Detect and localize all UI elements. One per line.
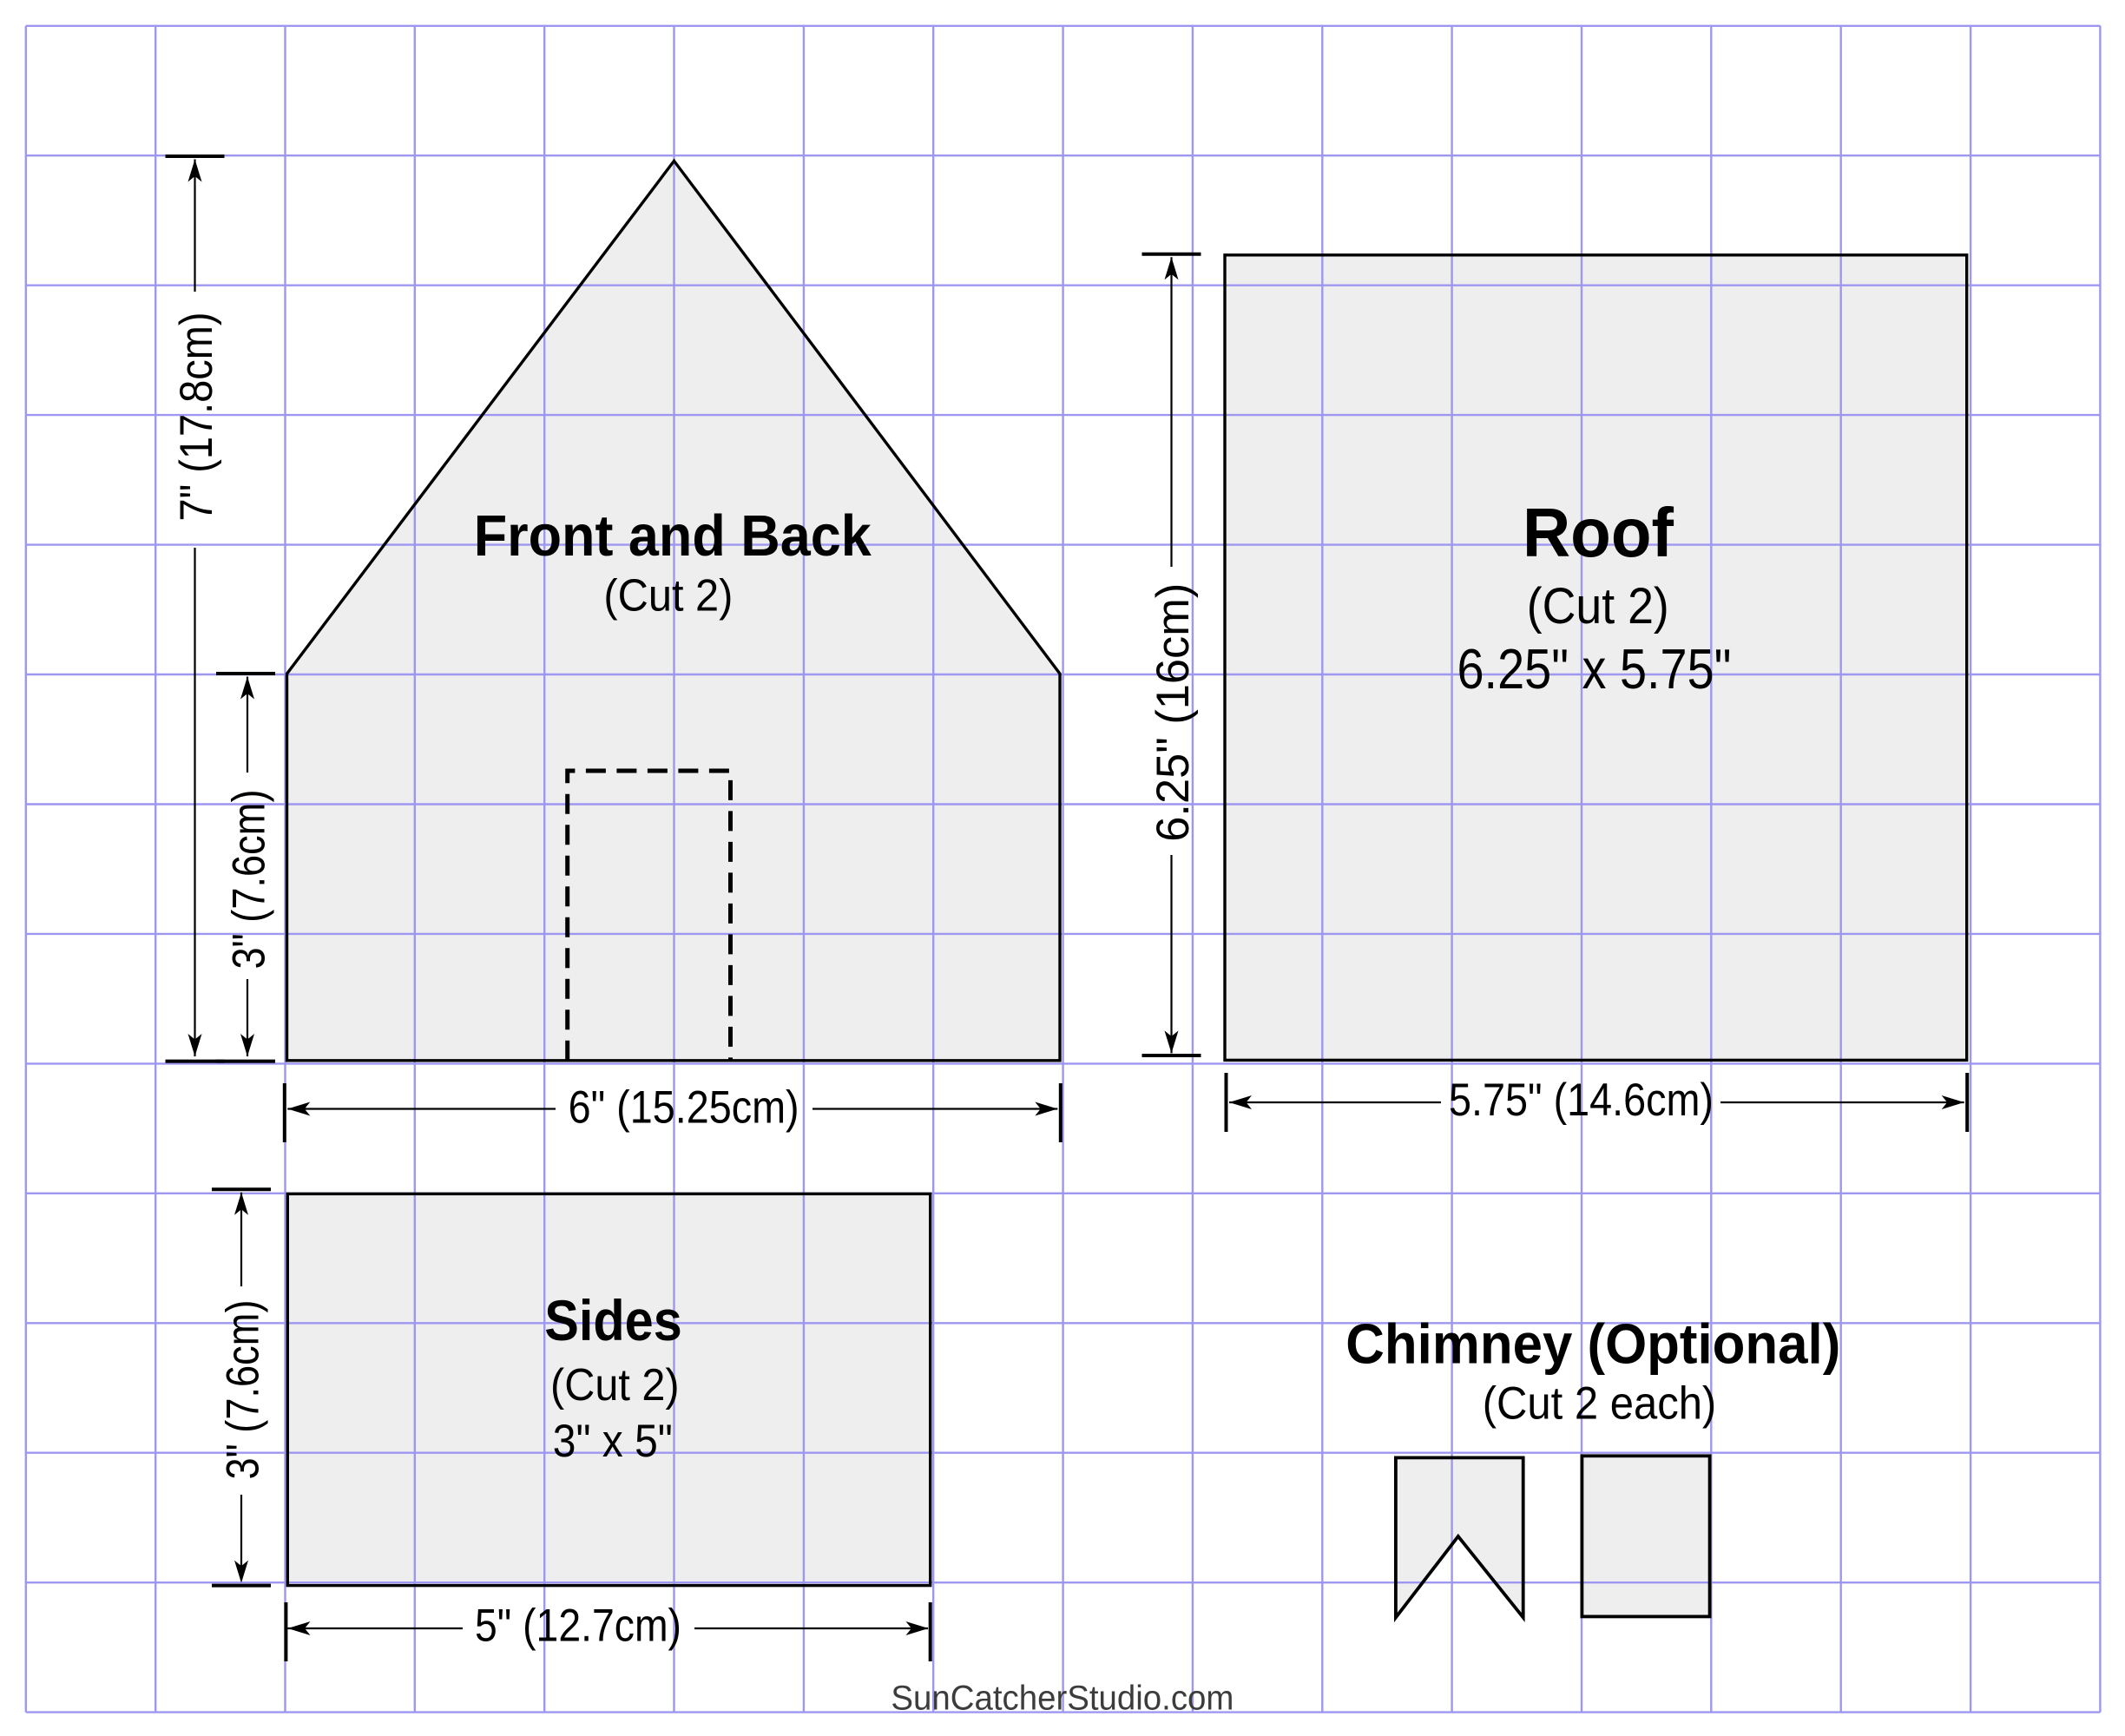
svg-text:6" (15.25cm): 6" (15.25cm): [569, 1082, 799, 1133]
svg-text:3" (7.6cm): 3" (7.6cm): [217, 1300, 268, 1480]
svg-text:(Cut 2): (Cut 2): [603, 571, 733, 621]
svg-text:6.25" x 5.75": 6.25" x 5.75": [1457, 638, 1732, 700]
svg-text:5" (12.7cm): 5" (12.7cm): [475, 1601, 681, 1652]
svg-text:6.25" (16cm): 6.25" (16cm): [1148, 583, 1199, 842]
svg-text:Chimney (Optional): Chimney (Optional): [1345, 1312, 1840, 1375]
svg-text:7" (17.8cm): 7" (17.8cm): [171, 312, 222, 522]
svg-text:SunCatcherStudio.com: SunCatcherStudio.com: [891, 1679, 1234, 1717]
svg-text:Front and Back: Front and Back: [474, 503, 872, 569]
svg-text:3" (7.6cm): 3" (7.6cm): [223, 790, 274, 970]
svg-text:Roof: Roof: [1523, 494, 1674, 571]
svg-text:(Cut 2): (Cut 2): [550, 1360, 680, 1410]
svg-text:3" x 5": 3" x 5": [553, 1416, 673, 1467]
svg-text:(Cut 2 each): (Cut 2 each): [1483, 1378, 1717, 1430]
svg-text:(Cut 2): (Cut 2): [1527, 578, 1669, 635]
svg-text:Sides: Sides: [544, 1288, 682, 1352]
svg-text:5.75" (14.6cm): 5.75" (14.6cm): [1449, 1075, 1714, 1126]
